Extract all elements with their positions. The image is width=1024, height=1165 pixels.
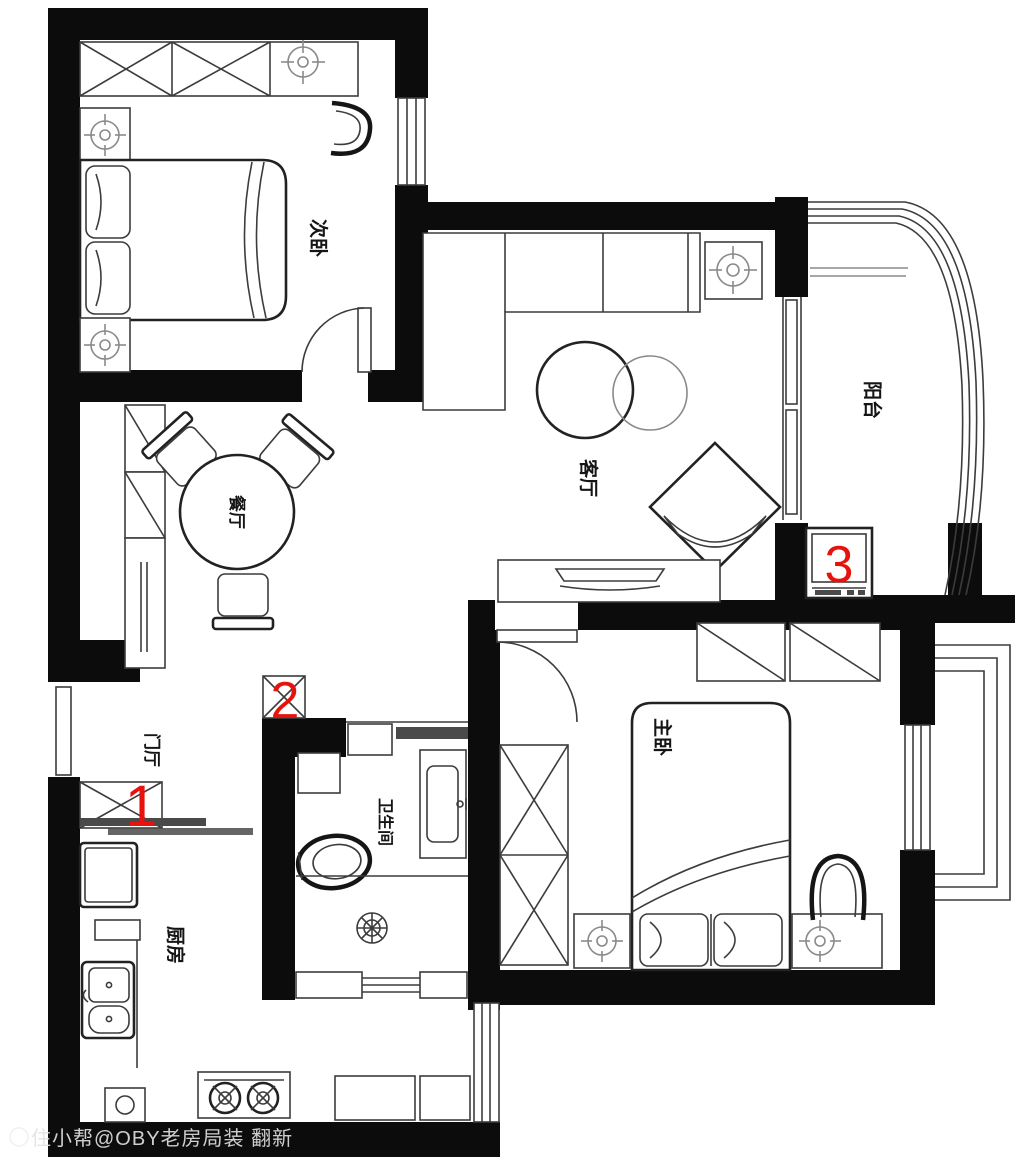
marker-3: 3 — [825, 536, 854, 594]
overhead-cabinet-icon — [697, 623, 880, 681]
room-balcony: 3 阳台 — [806, 381, 884, 598]
marker-2: 2 — [271, 672, 300, 730]
room-label-dining: 餐厅 — [227, 495, 247, 529]
floorplan-canvas: 次卧 客厅 — [0, 0, 1024, 1165]
nightstand-icon — [80, 108, 130, 162]
entry-door-leaf — [56, 687, 71, 775]
vanity-sink-icon — [420, 750, 466, 858]
watermark-text: 住小帮@OBY老房局装 翻新 — [31, 1127, 293, 1150]
room-dining: 餐厅 — [125, 405, 335, 668]
shower-door-icon — [296, 972, 467, 998]
room-label-master-bedroom: 主卧 — [651, 718, 673, 756]
door-swing-icon — [302, 308, 371, 372]
coffee-table-icon — [537, 342, 687, 438]
room-label-bathroom: 卫生间 — [376, 798, 395, 846]
room-bathroom: 卫生间 — [295, 722, 468, 998]
kitchen-sink-icon — [82, 962, 134, 1038]
bathroom-sliding-door — [396, 727, 468, 739]
bed-icon — [80, 160, 286, 320]
nightstand-icon — [574, 914, 630, 968]
sofa-icon — [423, 233, 700, 410]
ceiling-light-icon — [705, 242, 762, 299]
fridge-icon — [80, 843, 137, 907]
counter-box — [95, 920, 140, 940]
floorplan-page: 次卧 客厅 — [0, 0, 1024, 1165]
toilet-icon — [295, 832, 373, 892]
kitchen-cabinet-icon — [335, 1076, 415, 1120]
stove-icon — [198, 1072, 290, 1118]
dining-chair-icon — [213, 574, 273, 629]
kitchen-base-cabinet-icon — [105, 1088, 145, 1122]
nightstand-icon — [792, 914, 882, 968]
kitchen-cabinet-icon — [420, 1076, 470, 1120]
armchair-icon — [650, 443, 780, 571]
room-label-kitchen: 厨房 — [164, 926, 187, 964]
wardrobe-icon — [500, 745, 568, 965]
floor-drain-icon — [357, 913, 387, 943]
room-master-bedroom: 主卧 — [497, 623, 882, 970]
watermark-logo-icon — [10, 1128, 28, 1146]
tv-cabinet-icon — [498, 560, 720, 602]
washer-box-icon — [298, 753, 340, 793]
room-label-secondary-bedroom: 次卧 — [307, 219, 330, 257]
room-label-entry: 门厅 — [142, 733, 162, 767]
watermark: 住小帮@OBY老房局装 翻新 — [10, 1127, 293, 1150]
room-label-balcony: 阳台 — [861, 381, 884, 419]
room-label-living-room: 客厅 — [577, 459, 600, 497]
armchair-icon — [331, 103, 370, 154]
room-secondary-bedroom: 次卧 — [80, 40, 371, 372]
bathroom-cabinet-icon — [348, 724, 392, 755]
marker-1: 1 — [125, 774, 157, 839]
armchair-icon — [812, 856, 865, 920]
room-living-room: 客厅 — [423, 233, 780, 602]
door-swing-icon — [497, 630, 577, 722]
nightstand-icon — [80, 318, 130, 372]
shoe-cabinet-icon — [80, 782, 253, 835]
